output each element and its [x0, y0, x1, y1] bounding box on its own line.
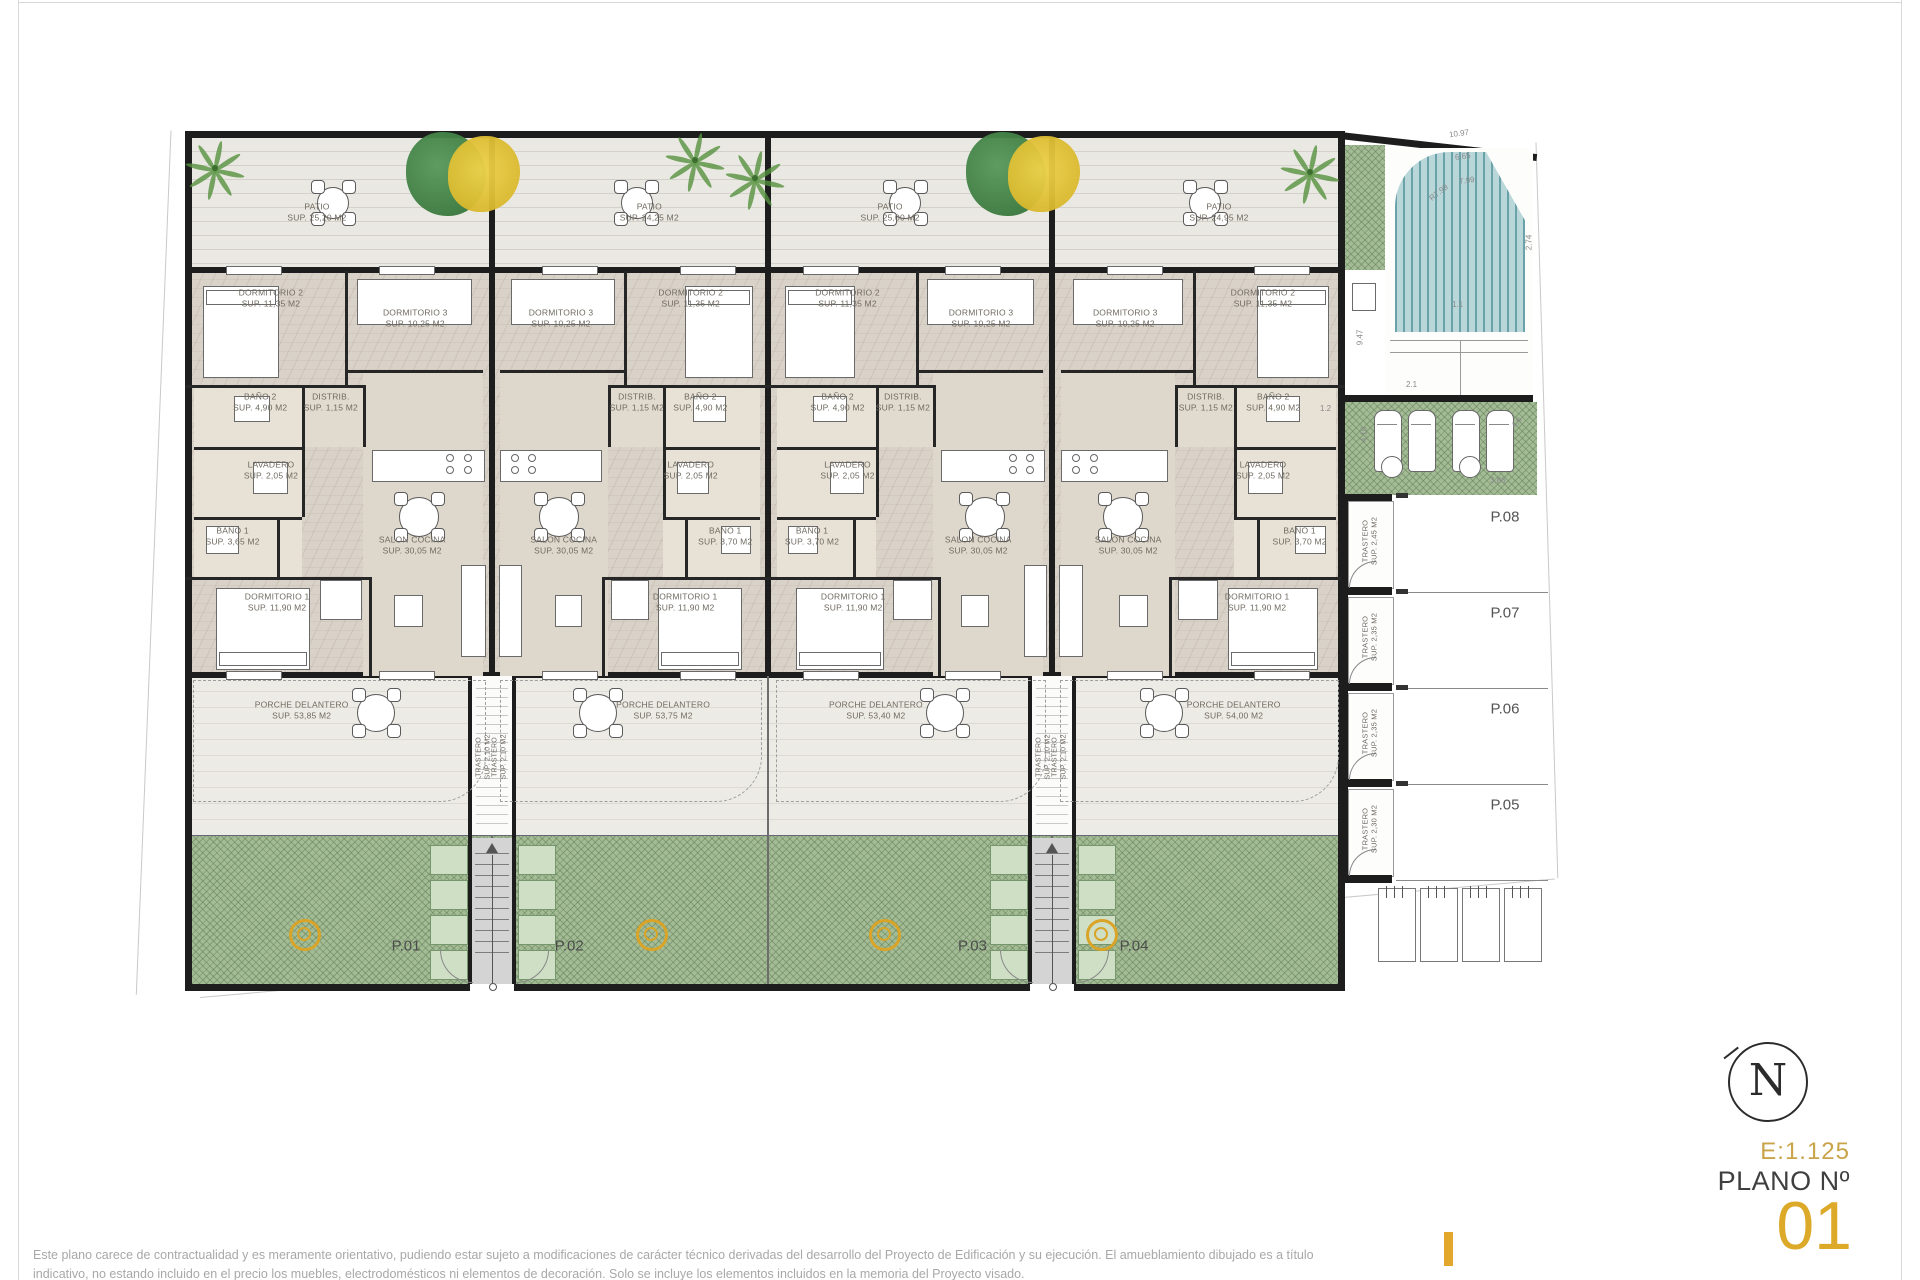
partition-P.04 [1234, 517, 1337, 520]
stove-burner-P.04 [1090, 454, 1098, 462]
window-porch-P.01 [379, 671, 435, 680]
stall-tick [1486, 886, 1487, 898]
strip-rung-0 [476, 814, 508, 815]
stall-tick [1470, 886, 1471, 898]
partition-P.01 [194, 447, 301, 450]
strip-rung-0 [476, 805, 508, 806]
deck-line [1390, 340, 1528, 341]
porch-P.04-chair [1140, 688, 1154, 702]
pillow1-P.02 [661, 652, 740, 666]
porch-dashed-P.02 [500, 680, 762, 802]
north-arrow: N [1728, 1042, 1808, 1122]
sofa-P.03 [1024, 565, 1047, 657]
trastero-divider-2 [1341, 779, 1392, 787]
patio-P.01-chair [311, 180, 325, 194]
lounger-side-table [1381, 456, 1403, 478]
partition-P.04 [1257, 517, 1260, 577]
wall-unit-divider [489, 138, 495, 676]
stair-dot-1 [1049, 983, 1057, 991]
partition-P.01 [277, 517, 280, 577]
sofa-P.04 [1059, 565, 1083, 657]
lounger-line [1377, 424, 1397, 425]
porch-label-P.01: PORCHE DELANTERO SUP. 53,85 M2 [255, 699, 349, 720]
dimension-0: 10.97 [1448, 128, 1469, 140]
porch-label-P.04: PORCHE DELANTERO SUP. 54,00 M2 [1187, 699, 1281, 720]
north-tick-icon [1723, 1047, 1738, 1059]
porch-P.02-chair [573, 688, 587, 702]
parking-stall [1504, 888, 1542, 962]
partition-P.02 [602, 577, 605, 676]
parking-label-P.05: P.05 [1491, 797, 1520, 814]
floor-plan: PATIO SUP. 25,20 M2DORMITORIO 2 SUP. 11,… [0, 0, 1920, 1280]
plano-number: 01 [1776, 1192, 1852, 1260]
stall-tick [1394, 886, 1395, 898]
stove-burner-P.02 [528, 466, 536, 474]
lounger-side-table [1459, 456, 1481, 478]
patio-label-P.02: PATIO SUP. 24,25 M2 [620, 201, 679, 222]
partition-P.03 [916, 271, 919, 385]
disclaimer: Este plano carece de contractualidad y e… [33, 1246, 1453, 1280]
stair-step-0 [475, 853, 509, 854]
porch-dashed-P.03 [776, 680, 1046, 802]
planter-0 [430, 880, 468, 910]
strip-trastero-label-a-0: TRASTERO SUP. 2,10 M2 [475, 734, 493, 779]
outdoor-shower [1352, 283, 1376, 311]
partition-P.03 [916, 370, 1044, 373]
room-label-P.02-4: LAVADERO SUP. 2,05 M2 [664, 459, 718, 480]
patio-P.02-chair [614, 180, 628, 194]
dining-P.04-chair [1098, 492, 1112, 506]
pillow1-P.01 [219, 652, 307, 666]
dimension-6: 9.47 [1355, 330, 1364, 346]
dimension-4: 2.74 [1524, 235, 1533, 251]
pillow1-P.03 [799, 652, 880, 666]
porch-label-P.03: PORCHE DELANTERO SUP. 53,40 M2 [829, 699, 923, 720]
deck-line [1460, 340, 1461, 395]
plot-boundary-right [1536, 142, 1559, 878]
coffee-table-P.02 [555, 595, 582, 627]
stall-tick [1436, 886, 1437, 898]
garden-edge-line [192, 835, 1338, 836]
window-patio-P.04 [1254, 266, 1310, 275]
room-label-P.03-5: BAÑO 1 SUP. 3,70 M2 [785, 525, 839, 546]
room-label-P.04-4: LAVADERO SUP. 2,05 M2 [1236, 459, 1290, 480]
porch-P.01-chair [387, 688, 401, 702]
parking-tick [1396, 493, 1408, 498]
stall-tick [1512, 886, 1513, 898]
room-label-P.01-2: BAÑO 2 SUP. 4,90 M2 [233, 391, 287, 412]
porch-dashed-P.04 [1060, 680, 1339, 802]
wall-unit-divider [765, 138, 771, 676]
window-porch-P.04 [1107, 671, 1163, 680]
partition-P.04 [1234, 385, 1237, 447]
room-label-P.04-5: BAÑO 1 SUP. 3,70 M2 [1272, 525, 1326, 546]
porch-P.02-chair [609, 724, 623, 738]
room-label-P.01-1: DORMITORIO 3 SUP. 10,25 M2 [383, 307, 448, 328]
deck-line [1390, 352, 1528, 353]
patio-label-P.01: PATIO SUP. 25,20 M2 [287, 201, 346, 222]
patio-label-P.03: PATIO SUP. 25,00 M2 [861, 201, 920, 222]
partition-P.02 [663, 447, 760, 450]
wardrobe-P.03 [893, 580, 932, 620]
window-porch-P.03 [803, 671, 859, 680]
window-porch-P.02 [542, 671, 598, 680]
porch-P.04-chair [1175, 724, 1189, 738]
partition-P.02 [624, 271, 627, 385]
planter-0 [430, 915, 468, 945]
window-patio-P.02 [542, 266, 598, 275]
title-block: N E:1.125 PLANO Nº 01 [1636, 1042, 1856, 1272]
stair-centerline-0 [492, 855, 493, 985]
wall-left [185, 131, 192, 991]
room-label-P.03-3: DISTRIB. SUP. 1,15 M2 [876, 391, 930, 412]
parking-stall [1378, 888, 1416, 962]
room-label-P.01-0: DORMITORIO 2 SUP. 11,35 M2 [239, 287, 304, 308]
room-label-P.04-1: DORMITORIO 3 SUP. 10,25 M2 [1093, 307, 1158, 328]
patio-label-P.04: PATIO SUP. 24,95 M2 [1189, 201, 1248, 222]
partition-P.01 [345, 370, 483, 373]
garden-band [192, 835, 1338, 984]
patio-P.03-chair [914, 180, 928, 194]
partition-P.04 [1175, 385, 1345, 388]
planter-1 [1078, 880, 1116, 910]
garden-ornament-inner-P.04 [1094, 927, 1108, 941]
partition-P.03 [777, 517, 876, 520]
strip-rung-1 [1036, 814, 1068, 815]
scale-label: E:1.125 [1760, 1138, 1850, 1166]
dining-P.04-chair [1135, 492, 1149, 506]
room-label-P.03-4: LAVADERO SUP. 2,05 M2 [820, 459, 874, 480]
partition-P.01 [345, 271, 348, 385]
parking-tick [1396, 781, 1408, 786]
parking-separator [1396, 688, 1548, 689]
room-label-P.02-5: BAÑO 1 SUP. 3,70 M2 [698, 525, 752, 546]
wall-unit-divider [1049, 138, 1055, 676]
room-label-P.03-7: SALON COCINA SUP. 30,05 M2 [945, 534, 1012, 555]
strip-trastero-label-a-1: TRASTERO SUP. 2,10 M2 [1035, 734, 1053, 779]
parking-tick [1396, 589, 1408, 594]
wardrobe-P.04 [1178, 580, 1218, 620]
stove-burner-P.01 [446, 466, 454, 474]
dining-P.03-chair [959, 492, 973, 506]
window-patio-P.03 [945, 266, 1001, 275]
window-porch-P.02 [680, 671, 736, 680]
stall-tick [1528, 886, 1529, 898]
plot-number-P.04: P.04 [1120, 938, 1149, 955]
stove-burner-P.01 [446, 454, 454, 462]
wardrobe-P.02 [611, 580, 649, 620]
plot-boundary-left [136, 130, 172, 994]
dimension-5: 1.1 [1452, 300, 1463, 309]
planter-0 [518, 915, 556, 945]
disclaimer-line1: Este plano carece de contractualidad y e… [33, 1246, 1453, 1265]
window-patio-P.03 [803, 266, 859, 275]
stall-tick [1444, 886, 1445, 898]
room-label-P.01-7: SALON COCINA SUP. 30,05 M2 [379, 534, 446, 555]
patio-P.02-chair [645, 180, 659, 194]
room-label-P.01-6: DORMITORIO 1 SUP. 11,90 M2 [245, 591, 310, 612]
window-patio-P.02 [680, 266, 736, 275]
trastero-divider-0 [1341, 587, 1392, 595]
room-label-P.02-6: DORMITORIO 1 SUP. 11,90 M2 [653, 591, 718, 612]
lounger-line [1489, 424, 1509, 425]
dining-P.03-chair [996, 492, 1010, 506]
trastero-label-0: TRASTERO SUP. 2,45 M2 [1361, 517, 1380, 565]
dimension-7: 2.1 [1406, 380, 1417, 389]
partition-P.01 [185, 385, 363, 388]
green-strip [1345, 145, 1385, 270]
parking-tick [1396, 685, 1408, 690]
dining-P.02-chair [571, 492, 585, 506]
parking-stall [1420, 888, 1458, 962]
porch-P.03-chair [920, 724, 934, 738]
room-label-P.02-7: SALON COCINA SUP. 30,05 M2 [530, 534, 597, 555]
patio-P.03-chair [883, 180, 897, 194]
stair-dot-0 [489, 983, 497, 991]
partition-P.03 [933, 385, 936, 447]
partition-P.02 [685, 517, 688, 577]
accent-bar [1444, 1232, 1453, 1266]
partition-P.04 [1234, 447, 1337, 450]
room-label-P.02-1: DORMITORIO 3 SUP. 10,25 M2 [529, 307, 594, 328]
wardrobe-P.01 [320, 580, 362, 620]
stair-centerline-1 [1052, 855, 1053, 985]
planter-0 [518, 845, 556, 875]
palm-1-trunk [212, 165, 218, 171]
parking-stall [1462, 888, 1500, 962]
window-porch-P.03 [945, 671, 1001, 680]
patio-P.04-chair [1214, 180, 1228, 194]
strip-rung-0 [476, 823, 508, 824]
fence-unit-divider [767, 676, 769, 984]
partition-P.04 [1061, 370, 1193, 373]
sun-lounger [1408, 410, 1436, 472]
wall-top [185, 131, 1345, 138]
room-label-P.04-0: DORMITORIO 2 SUP. 11,35 M2 [1231, 287, 1296, 308]
window-patio-P.01 [226, 266, 282, 275]
parking-label-P.06: P.06 [1491, 701, 1520, 718]
dining-P.01-chair [431, 492, 445, 506]
dimension-9: 4,16 [1359, 427, 1368, 443]
stall-tick [1478, 886, 1479, 898]
patio-P.01-chair [342, 180, 356, 194]
wall-pool-bottom [1345, 395, 1533, 402]
plot-number-P.03: P.03 [958, 938, 987, 955]
window-patio-P.01 [379, 266, 435, 275]
parking-label-P.07: P.07 [1491, 605, 1520, 622]
room-label-P.04-3: DISTRIB. SUP. 1,15 M2 [1179, 391, 1233, 412]
garden-ornament-inner-P.03 [877, 927, 891, 941]
stall-tick [1386, 886, 1387, 898]
trastero-label-3: TRASTERO SUP. 2,30 M2 [1361, 805, 1380, 853]
patio-P.04-chair [1183, 180, 1197, 194]
window-patio-P.04 [1107, 266, 1163, 275]
parking-label-P.08: P.08 [1491, 509, 1520, 526]
stair-arrow-0 [486, 843, 498, 853]
partition-P.03 [938, 577, 941, 676]
partition-P.03 [853, 517, 856, 577]
sheet: PATIO SUP. 25,20 M2DORMITORIO 2 SUP. 11,… [0, 0, 1920, 1280]
window-porch-P.04 [1254, 671, 1310, 680]
coffee-table-P.01 [394, 595, 424, 627]
partition-P.01 [369, 577, 372, 676]
porch-P.02-chair [573, 724, 587, 738]
room-label-P.04-6: DORMITORIO 1 SUP. 11,90 M2 [1225, 591, 1290, 612]
porch-P.04-chair [1140, 724, 1154, 738]
palm-2-trunk [692, 157, 698, 163]
planter-1 [990, 845, 1028, 875]
planter-1 [990, 880, 1028, 910]
partition-P.02 [608, 385, 768, 388]
coffee-table-P.04 [1119, 595, 1147, 627]
room-label-P.03-2: BAÑO 2 SUP. 4,90 M2 [810, 391, 864, 412]
strip-trastero-label-b-0: TRASTERO SUP. 2,10 M2 [491, 734, 509, 779]
strip-trastero-label-b-1: TRASTERO SUP. 2,10 M2 [1051, 734, 1069, 779]
partition-P.02 [500, 370, 624, 373]
partition-P.04 [1169, 577, 1172, 676]
planter-1 [990, 915, 1028, 945]
stall-tick [1520, 886, 1521, 898]
room-label-P.02-0: DORMITORIO 2 SUP. 11,35 M2 [658, 287, 723, 308]
plot-number-P.01: P.01 [392, 938, 421, 955]
dining-P.01-chair [394, 492, 408, 506]
porch-P.03-chair [956, 688, 970, 702]
porch-P.01-chair [352, 688, 366, 702]
strip-rung-1 [1036, 823, 1068, 824]
lounger-line [1411, 424, 1431, 425]
planter-0 [518, 880, 556, 910]
coffee-table-P.03 [961, 595, 989, 627]
partition-P.02 [663, 517, 760, 520]
stair-step-1 [1035, 853, 1069, 854]
room-label-P.04-7: SALON COCINA SUP. 30,05 M2 [1095, 534, 1162, 555]
room-label-P.03-0: DORMITORIO 2 SUP. 11,35 M2 [815, 287, 880, 308]
partition-P.01 [363, 385, 366, 447]
partition-P.01 [302, 447, 305, 517]
north-letter: N [1749, 1055, 1788, 1106]
sofa-P.01 [461, 565, 486, 657]
room-label-P.03-6: DORMITORIO 1 SUP. 11,90 M2 [821, 591, 886, 612]
room-label-P.01-4: LAVADERO SUP. 2,05 M2 [244, 459, 298, 480]
palm-3-trunk [752, 175, 758, 181]
room-label-P.02-3: DISTRIB. SUP. 1,15 M2 [610, 391, 664, 412]
stove-burner-P.02 [528, 454, 536, 462]
partition-P.03 [876, 447, 879, 517]
porch-dashed-P.01 [193, 680, 486, 802]
room-label-P.01-3: DISTRIB. SUP. 1,15 M2 [304, 391, 358, 412]
parking-separator [1396, 592, 1548, 593]
partition-P.03 [768, 385, 933, 388]
room-label-P.03-1: DORMITORIO 3 SUP. 10,25 M2 [949, 307, 1014, 328]
porch-P.01-chair [352, 724, 366, 738]
pillow1-P.04 [1231, 652, 1315, 666]
trastero-col-top [1341, 494, 1392, 501]
stove-burner-P.04 [1090, 466, 1098, 474]
room-label-P.04-2: BAÑO 2 SUP. 4,90 M2 [1246, 391, 1300, 412]
porch-P.01-chair [387, 724, 401, 738]
parking-separator [1396, 784, 1548, 785]
dining-P.02-chair [534, 492, 548, 506]
partition-P.01 [194, 517, 301, 520]
stall-tick [1428, 886, 1429, 898]
trastero-label-2: TRASTERO SUP. 2,35 M2 [1361, 709, 1380, 757]
palm-4-trunk [1307, 169, 1313, 175]
disclaimer-line2: indicativo, no estando incluido en el pr… [33, 1265, 1453, 1280]
stair-arrow-1 [1046, 843, 1058, 853]
stall-tick [1402, 886, 1403, 898]
planter-1 [1078, 845, 1116, 875]
planter-0 [430, 845, 468, 875]
plot-number-P.02: P.02 [555, 938, 584, 955]
partition-P.04 [1175, 385, 1178, 447]
porch-label-P.02: PORCHE DELANTERO SUP. 53,75 M2 [616, 699, 710, 720]
parking-separator [1396, 880, 1548, 881]
lounger-line [1455, 424, 1475, 425]
trastero-divider-3 [1341, 875, 1392, 883]
partition-P.04 [1234, 447, 1237, 517]
partition-P.04 [1193, 271, 1196, 385]
porch-P.03-chair [956, 724, 970, 738]
wall-bottom [185, 984, 1345, 991]
partition-P.03 [777, 447, 876, 450]
trastero-label-1: TRASTERO SUP. 2,35 M2 [1361, 613, 1380, 661]
room-label-P.02-2: BAÑO 2 SUP. 4,90 M2 [673, 391, 727, 412]
dimension-11: 3,86 [1490, 476, 1506, 485]
trastero-divider-1 [1341, 683, 1392, 691]
strip-rung-1 [1036, 805, 1068, 806]
sofa-P.02 [499, 565, 522, 657]
garden-ornament-inner-P.01 [297, 927, 311, 941]
sun-lounger [1486, 410, 1514, 472]
room-label-P.01-5: BAÑO 1 SUP. 3,65 M2 [205, 525, 259, 546]
window-porch-P.01 [226, 671, 282, 680]
dimension-8: 1.2 [1320, 404, 1331, 413]
partition-P.02 [663, 447, 666, 517]
